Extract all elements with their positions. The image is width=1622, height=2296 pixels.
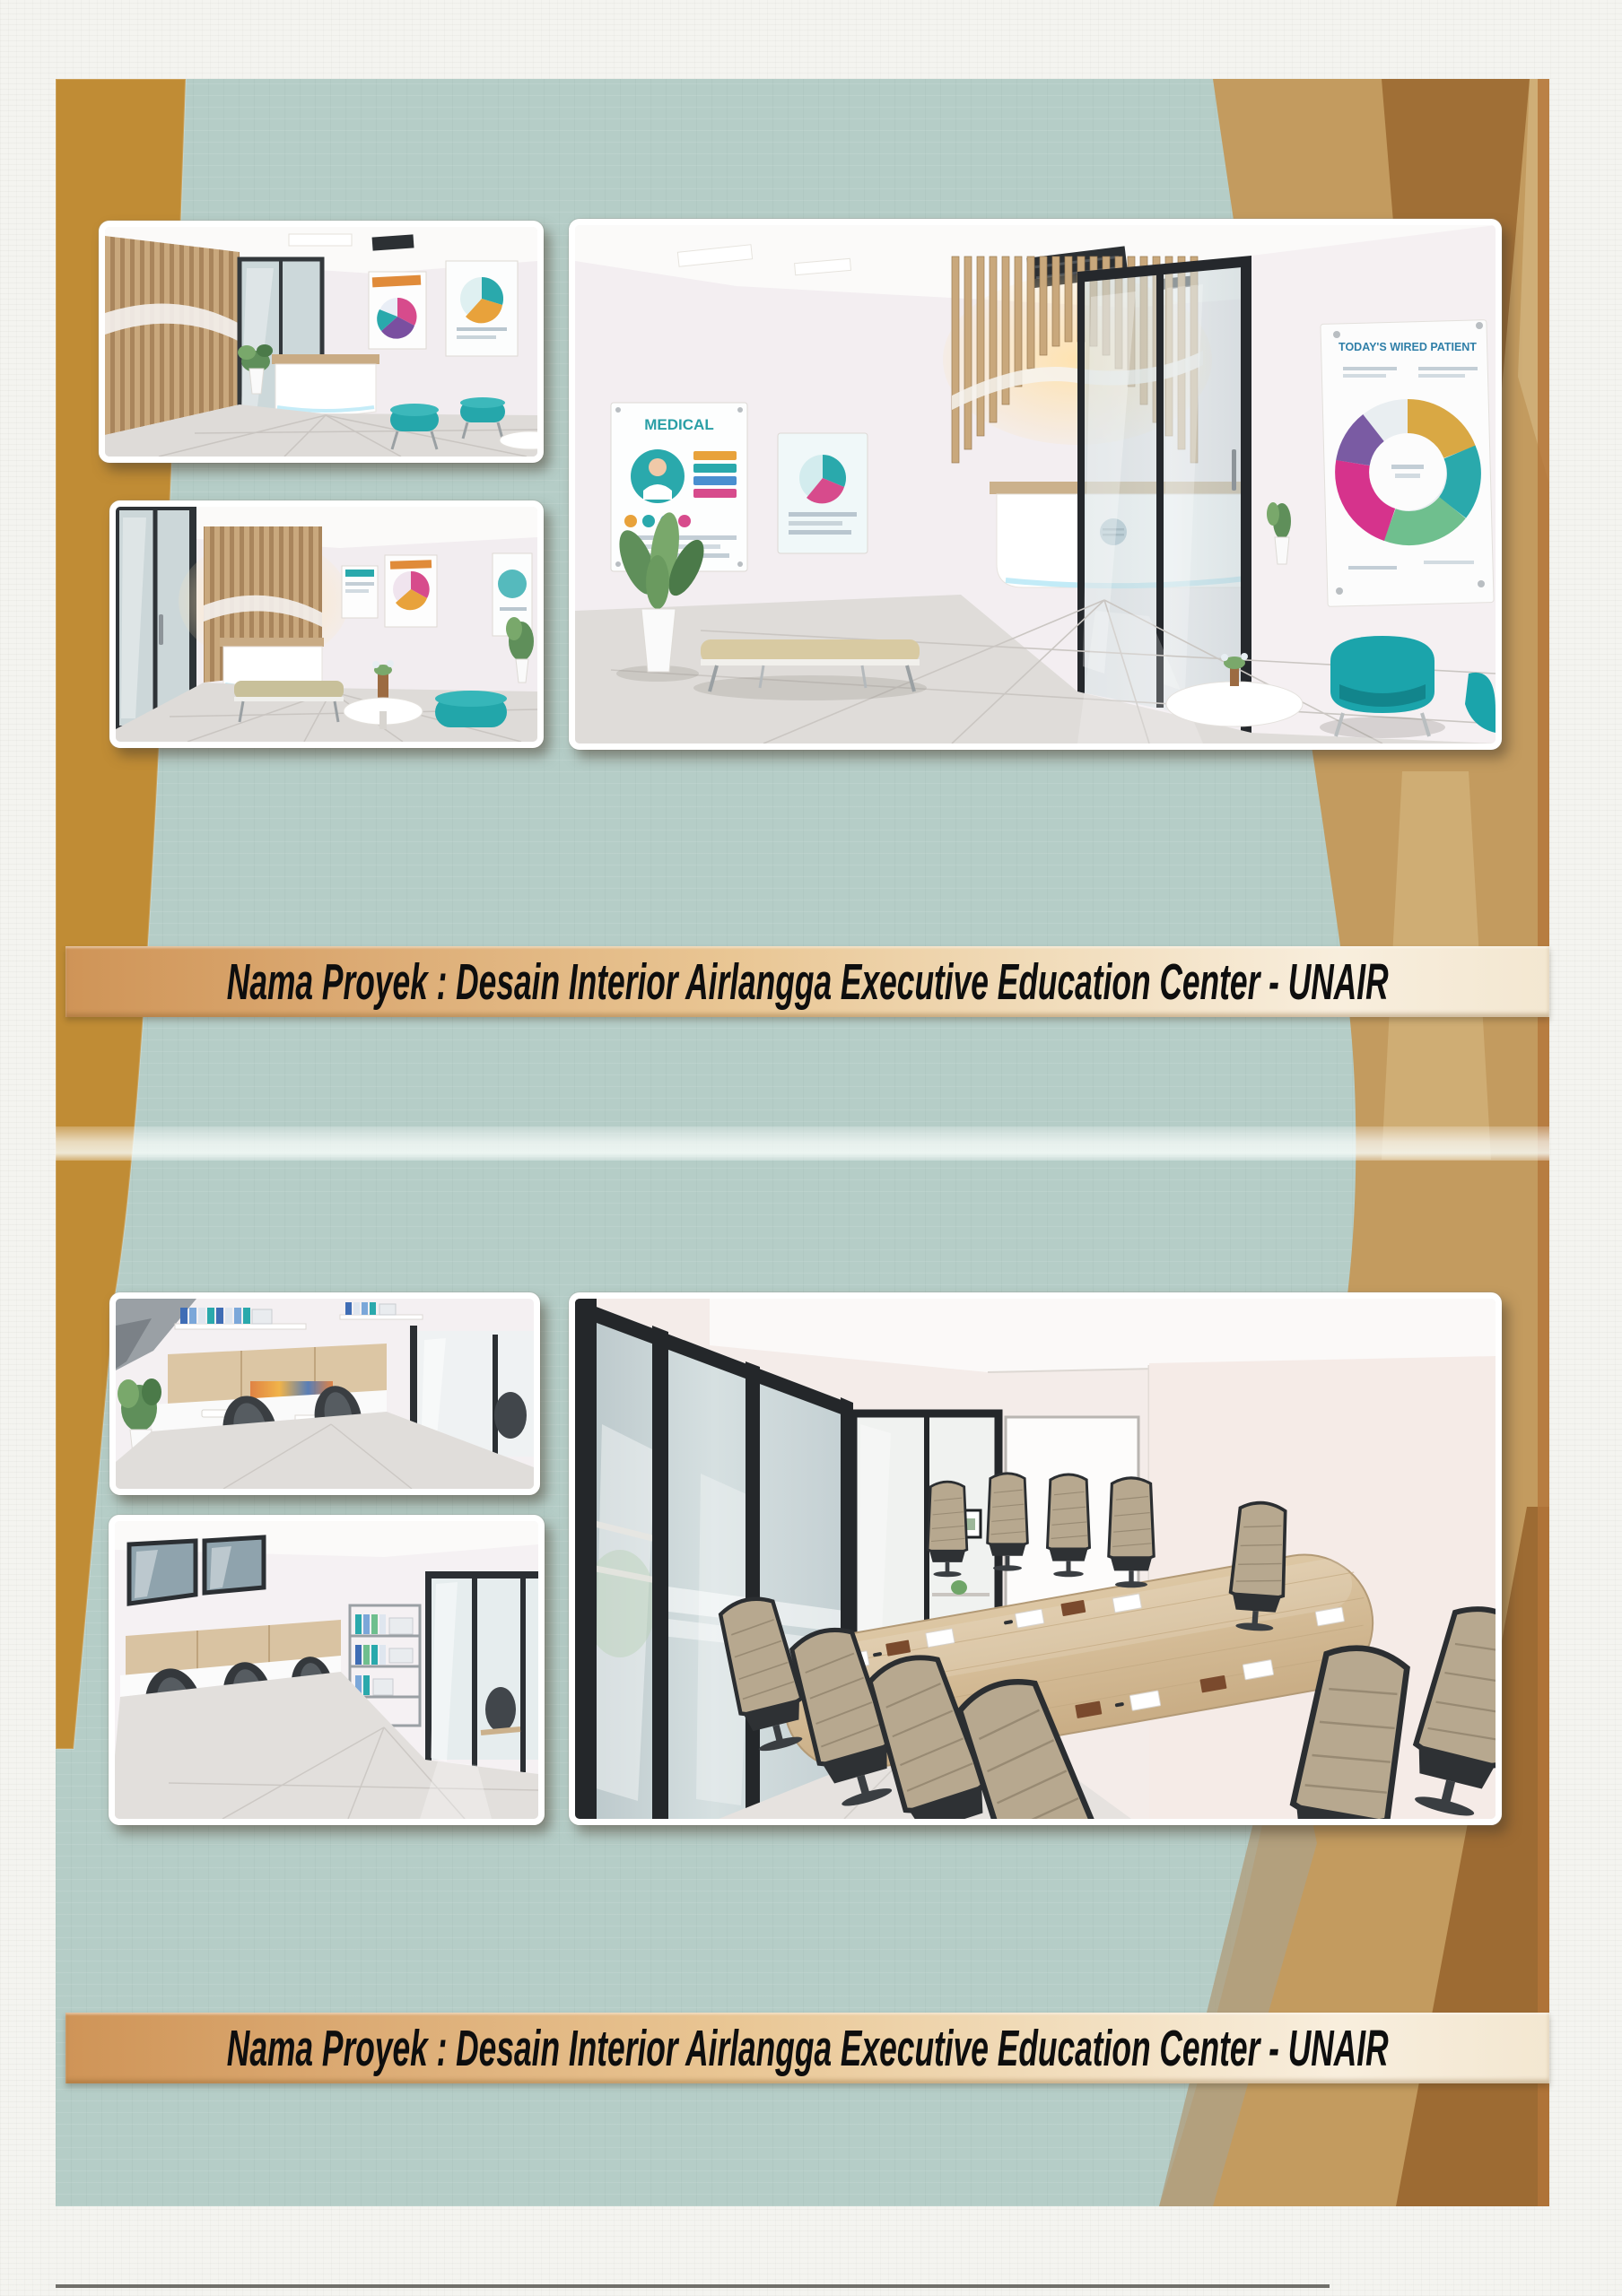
meeting-room-scene: [575, 1299, 1496, 1819]
render-meeting-room: [569, 1292, 1502, 1825]
render-workspace-2: [109, 1515, 545, 1825]
render-reception-1: [99, 221, 544, 463]
reception-desk: [272, 354, 379, 415]
wood-slat-wall: [105, 236, 240, 435]
wall-poster: [446, 261, 518, 356]
ac-vent: [372, 234, 414, 250]
render-workspace-1: [109, 1292, 540, 1495]
clerestory-window: [129, 1541, 196, 1604]
sheet-edge-line: [56, 2284, 1330, 2288]
wall-poster: [778, 433, 868, 553]
project-name-text: Nama Proyek : Desain Interior Airlangga …: [227, 2019, 1389, 2078]
teal-chair: [1320, 636, 1445, 738]
project-name-banner-top: Nama Proyek : Desain Interior Airlangga …: [65, 946, 1549, 1017]
glass-meeting-room: [425, 1571, 538, 1774]
office-chair: [494, 1392, 527, 1439]
svg-text:MEDICAL: MEDICAL: [644, 416, 713, 433]
reception-1-scene: [105, 227, 537, 457]
wall-poster: [369, 272, 426, 349]
office-chair: [485, 1687, 516, 1732]
workspace-1-scene: [116, 1299, 534, 1489]
wall-poster: [385, 555, 437, 627]
ceiling-light: [289, 234, 352, 246]
divider-strip: [56, 1126, 1549, 1161]
door-handle: [1232, 449, 1236, 491]
door-handle: [159, 614, 163, 645]
render-reception-2: [109, 500, 544, 748]
clerestory-window: [205, 1537, 264, 1593]
teal-ottoman: [435, 691, 507, 727]
wired-patient-poster: TODAY'S WIRED PATIENT: [1321, 320, 1494, 607]
render-reception-main: MEDICAL: [569, 219, 1502, 750]
reception-2-scene: [116, 507, 537, 742]
project-name-text: Nama Proyek : Desain Interior Airlangga …: [227, 952, 1389, 1012]
workspace-2-scene: [115, 1521, 538, 1819]
reception-main-scene: MEDICAL: [575, 225, 1496, 744]
project-name-banner-bottom: Nama Proyek : Desain Interior Airlangga …: [65, 2013, 1549, 2083]
portfolio-sheet: MEDICAL: [0, 0, 1622, 2296]
wall-poster: [342, 566, 378, 618]
shelf-plant: [951, 1580, 967, 1595]
svg-text:TODAY'S WIRED PATIENT: TODAY'S WIRED PATIENT: [1339, 341, 1477, 353]
